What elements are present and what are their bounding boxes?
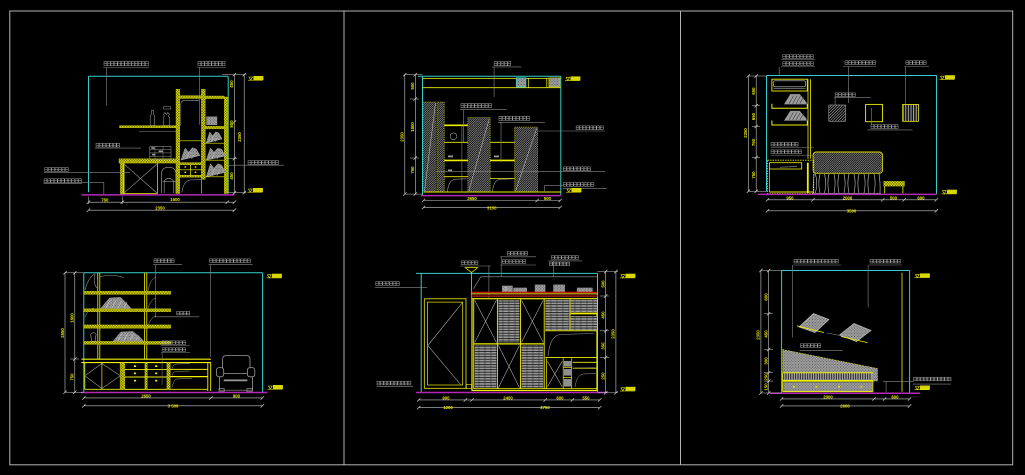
svg-text:2000: 2000 xyxy=(823,394,833,399)
svg-text:2400: 2400 xyxy=(503,395,513,400)
svg-text:600: 600 xyxy=(891,394,899,399)
svg-text:300: 300 xyxy=(764,357,769,365)
svg-text:750: 750 xyxy=(751,138,756,146)
svg-text:600: 600 xyxy=(764,293,769,301)
svg-text:450: 450 xyxy=(229,80,234,88)
svg-text:2350: 2350 xyxy=(155,206,165,211)
svg-text:250: 250 xyxy=(601,372,606,380)
svg-text:900: 900 xyxy=(233,393,241,398)
svg-text:500: 500 xyxy=(410,82,415,90)
svg-text:1800: 1800 xyxy=(410,122,415,132)
svg-text:2650: 2650 xyxy=(467,196,477,201)
svg-text:600: 600 xyxy=(917,195,925,200)
svg-text:900: 900 xyxy=(442,395,450,400)
svg-text:1600: 1600 xyxy=(170,197,180,202)
svg-text:950: 950 xyxy=(786,195,794,200)
svg-text:2350: 2350 xyxy=(237,132,242,142)
svg-text:3500: 3500 xyxy=(847,208,857,213)
svg-text:750: 750 xyxy=(751,171,756,179)
svg-text:550: 550 xyxy=(582,395,590,400)
svg-text:500: 500 xyxy=(601,280,606,288)
svg-text:750: 750 xyxy=(70,373,75,381)
svg-text:2550: 2550 xyxy=(60,328,65,338)
svg-text:800: 800 xyxy=(229,120,234,128)
svg-text:3750: 3750 xyxy=(540,405,550,410)
svg-text:2350: 2350 xyxy=(611,329,616,339)
svg-text:2000: 2000 xyxy=(843,195,853,200)
svg-text:350: 350 xyxy=(601,342,606,350)
svg-text:450: 450 xyxy=(601,311,606,319)
svg-text:3 500: 3 500 xyxy=(168,403,179,408)
svg-text:150: 150 xyxy=(764,383,769,391)
svg-text:750: 750 xyxy=(101,198,109,203)
svg-text:1200: 1200 xyxy=(443,405,453,410)
svg-text:2350: 2350 xyxy=(743,128,748,138)
svg-text:600: 600 xyxy=(556,395,564,400)
svg-text:3150: 3150 xyxy=(487,206,497,211)
svg-text:500: 500 xyxy=(544,196,552,201)
svg-text:650: 650 xyxy=(751,112,756,120)
svg-text:2600: 2600 xyxy=(840,403,850,408)
svg-text:250: 250 xyxy=(764,373,769,381)
svg-text:500: 500 xyxy=(890,195,898,200)
svg-text:1800: 1800 xyxy=(70,313,75,323)
svg-text:650: 650 xyxy=(751,87,756,95)
svg-text:450: 450 xyxy=(764,330,769,338)
svg-text:2350: 2350 xyxy=(400,132,405,142)
svg-text:2650: 2650 xyxy=(141,393,151,398)
svg-text:750: 750 xyxy=(410,166,415,174)
svg-text:2350: 2350 xyxy=(756,330,761,340)
svg-text:450: 450 xyxy=(229,172,234,180)
